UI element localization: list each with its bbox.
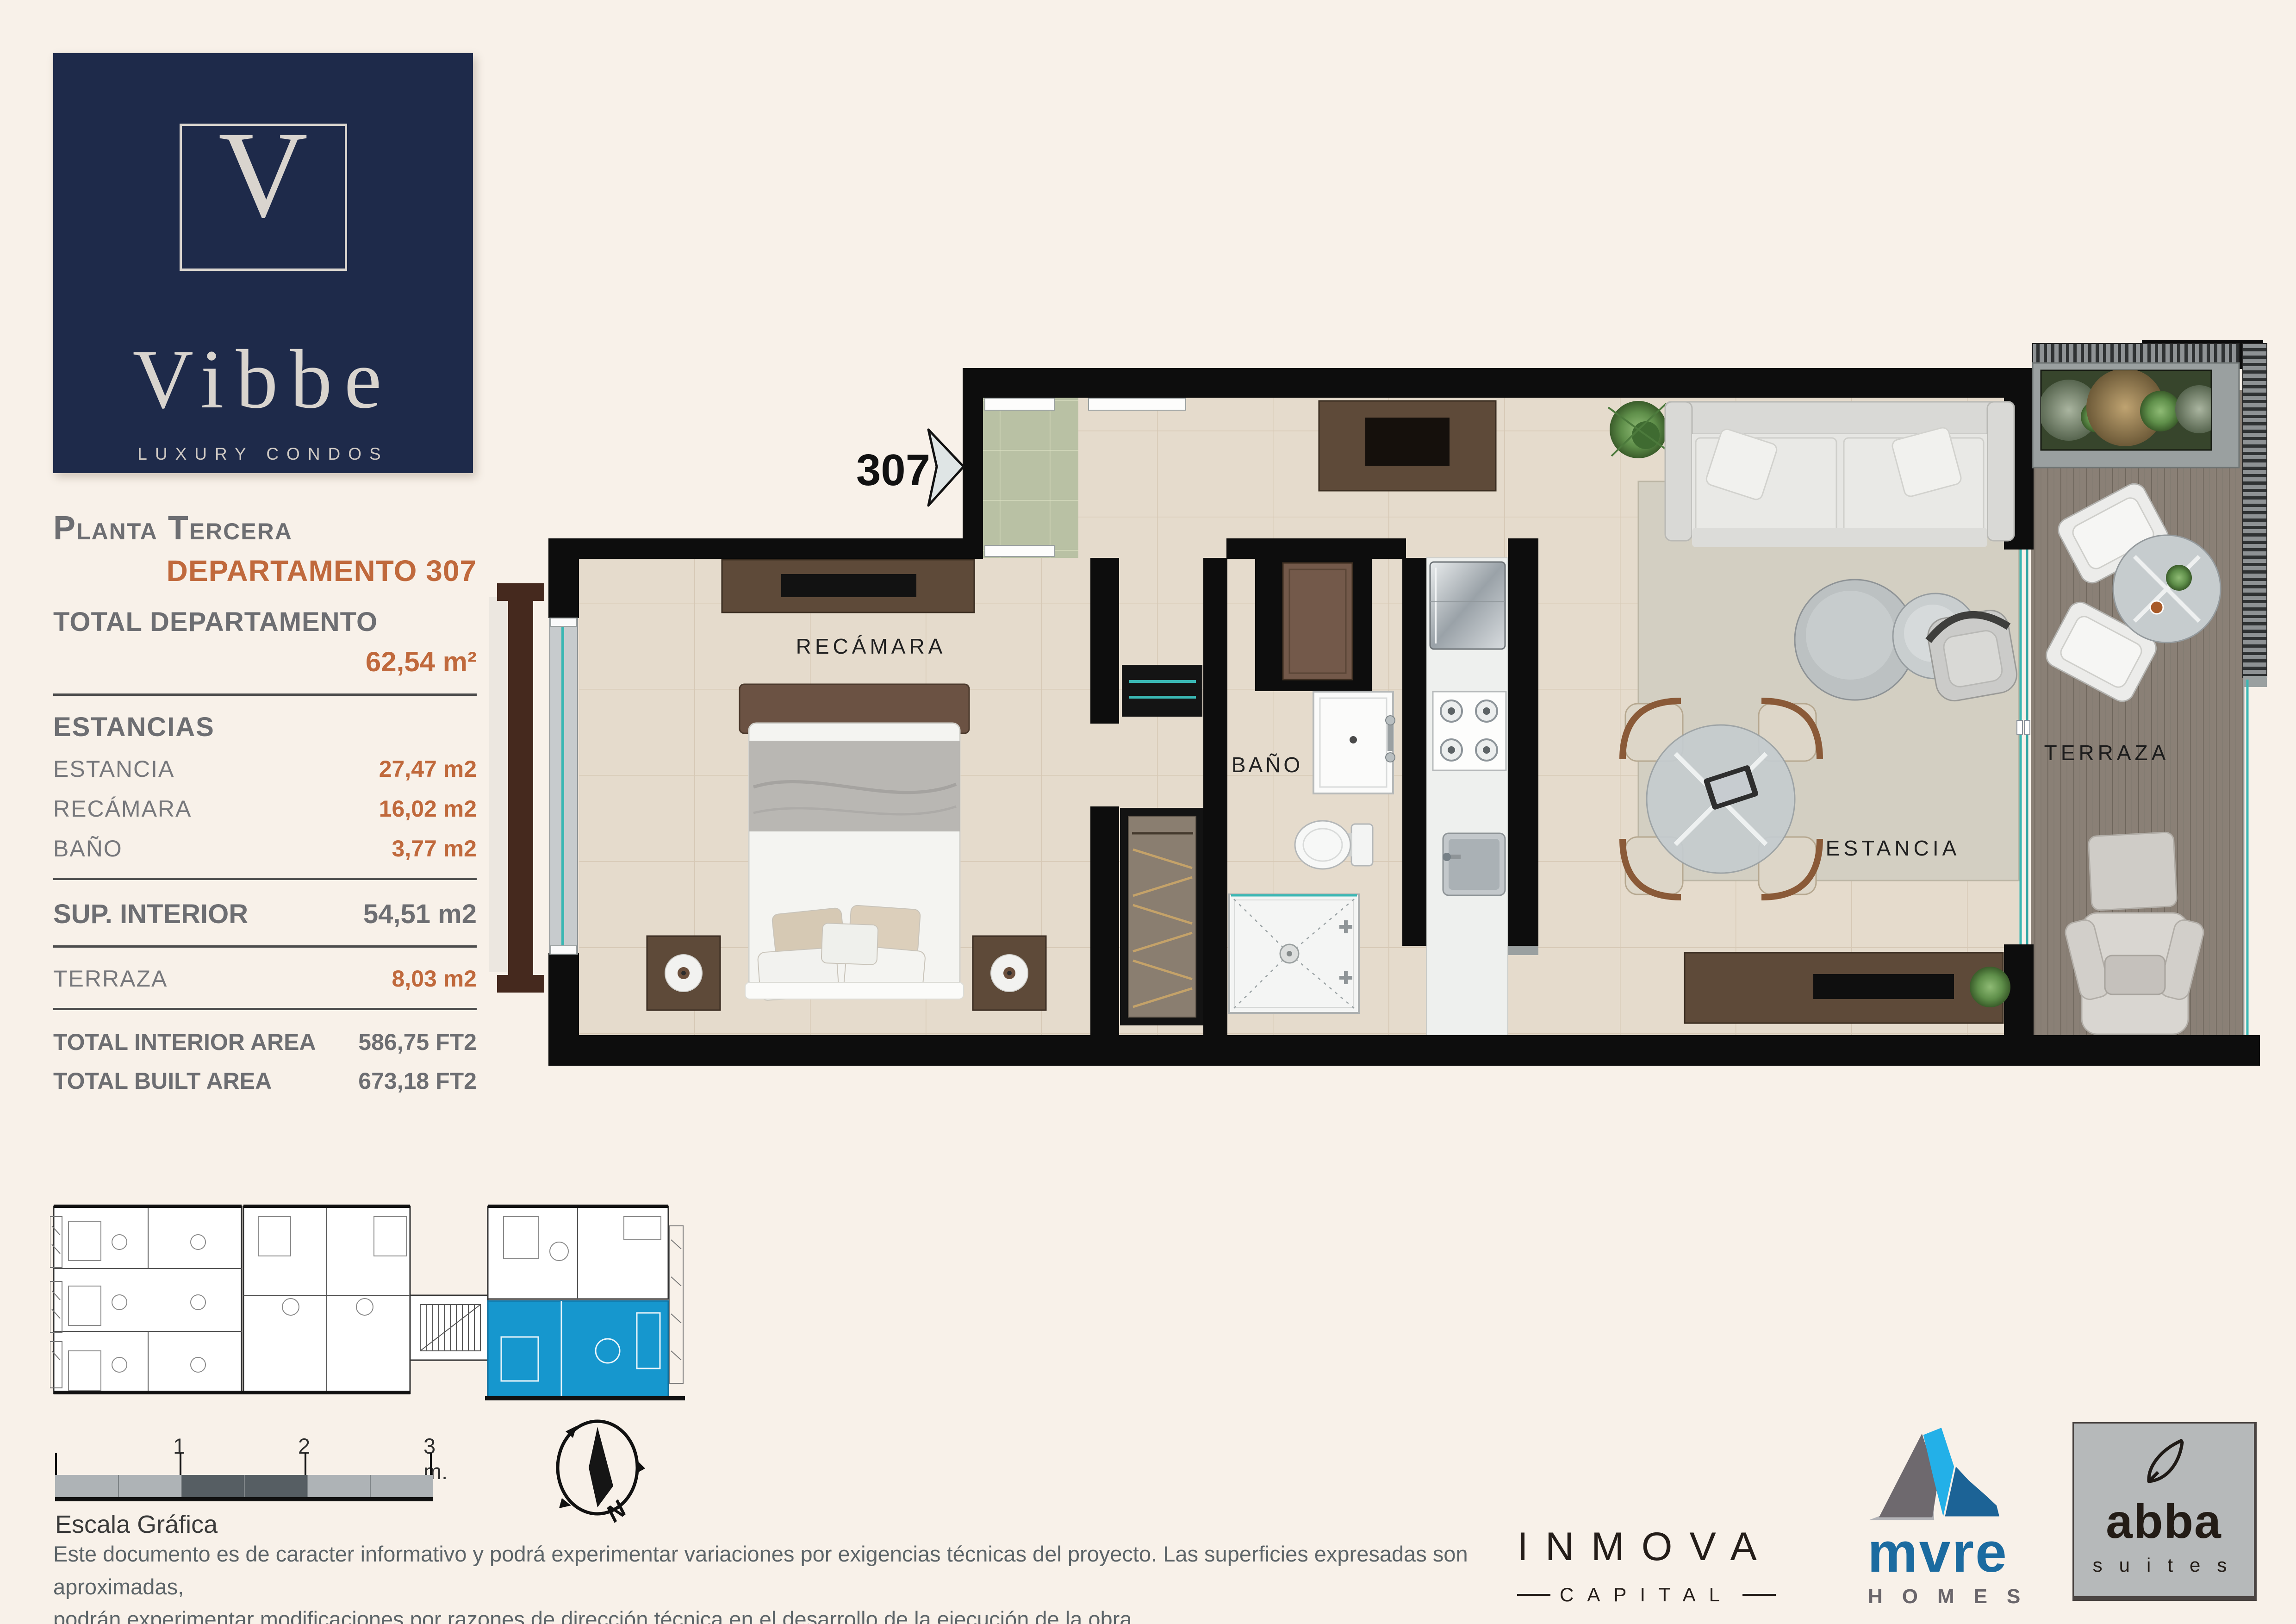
brochure-page: V Vibbe LUXURY CONDOS Planta Tercera DEP… [0,0,2296,1624]
total-departamento-label: TOTAL DEPARTAMENTO [53,606,477,637]
scale-baseline [55,1497,433,1501]
room-value: 16,02 m2 [379,795,477,822]
abba-leaf-icon [2139,1434,2190,1489]
dash-decoration [1517,1594,1550,1596]
room-row-estancia: ESTANCIA 27,47 m2 [53,756,477,782]
total-built-row: TOTAL BUILT AREA 673,18 FT2 [53,1068,477,1094]
terraza-label: TERRAZA [53,965,168,992]
abba-name: abba [2074,1494,2254,1549]
window-jamb [551,618,577,626]
kitchen-wall-end [1508,946,1538,955]
mvre-mountain-icon [1864,1427,2012,1526]
disclaimer-text: Este documento es de caracter informativ… [53,1538,1474,1624]
scale-bar: 1 2 3 m. [55,1433,433,1503]
sup-interior-row: SUP. INTERIOR 54,51 m2 [53,899,477,930]
wardrobe [1120,808,1203,1025]
scale-segment [181,1475,244,1497]
terrace-table [2113,535,2221,643]
room-row-recamara: RECÁMARA 16,02 m2 [53,795,477,822]
dash-decoration [1742,1594,1776,1596]
sofa [1665,402,2014,547]
neighbor-shadow [489,597,507,972]
divider [53,1008,477,1010]
terrace-back-cushion [2088,832,2177,910]
unit-number-label: 307 [856,445,930,495]
inmova-logo: INMOVA CAPITAL [1517,1524,1776,1606]
scale-segment [118,1475,181,1497]
divider [53,878,477,880]
bath-vanity [1283,563,1352,680]
entry-arrow-icon [928,430,964,506]
terrace-planter [2033,363,2239,468]
disclaimer-line-1: Este documento es de caracter informativ… [53,1538,1474,1603]
sup-interior-value: 54,51 m2 [363,899,477,930]
compass-icon: N [550,1407,647,1530]
total-interior-label: TOTAL INTERIOR AREA [53,1029,316,1056]
dining-set [1623,701,1820,897]
mvre-homes-text: HOMES [1868,1585,2014,1608]
terraza-row: TERRAZA 8,03 m2 [53,965,477,992]
living-tv-console [1685,953,2010,1023]
brand-tagline: LUXURY CONDOS [53,444,473,464]
terrace-lounge-chair [2063,913,2205,1034]
living-label: ESTANCIA [1826,836,1960,860]
disclaimer-line-2: podrán experimentar modificaciones por r… [53,1603,1474,1624]
kitchen-sink [1443,833,1505,895]
highlighted-unit-307 [488,1301,668,1399]
brand-logo-block: V Vibbe LUXURY CONDOS [53,53,473,473]
room-label: BAÑO [53,835,123,862]
closet-console [1122,665,1202,717]
stove [1433,692,1506,770]
window-jamb [551,946,577,954]
toilet [1295,821,1373,869]
brand-name: Vibbe [53,331,473,428]
divider [53,945,477,948]
floor-overview-plan [50,1198,685,1400]
room-label: RECÁMARA [53,795,192,822]
abba-logo: abba suites [2072,1422,2257,1601]
divider [53,693,477,696]
console-plant [1970,967,2010,1007]
entry-vestibule-floor [982,397,1078,558]
estancias-heading: ESTANCIAS [53,712,477,743]
fridge [1430,562,1505,649]
room-value: 27,47 m2 [379,756,477,782]
terrace-top-louver [2033,344,2239,363]
mvre-logo: mvre HOMES [1861,1427,2014,1608]
shower-tray [1229,894,1359,1013]
total-interior-row: TOTAL INTERIOR AREA 586,75 FT2 [53,1029,477,1056]
total-built-label: TOTAL BUILT AREA [53,1068,272,1094]
bedroom-tv-console [722,560,974,612]
terrace-right-louver [2243,344,2267,678]
inmova-subtitle: CAPITAL [1517,1584,1776,1606]
logo-v-monogram: V [53,112,473,237]
shower-small [1313,692,1395,793]
scale-caption: Escala Gráfica [55,1510,218,1539]
total-built-value: 673,18 FT2 [358,1068,477,1094]
living-armchair [1925,607,2020,704]
sup-interior-label: SUP. INTERIOR [53,899,248,930]
terrace-right-glass [2243,676,2267,1035]
bath-label: BAÑO [1232,753,1303,777]
abba-suites-text: suites [2082,1554,2254,1576]
scale-segment [55,1475,118,1497]
scale-segment [307,1475,370,1497]
total-interior-value: 586,75 FT2 [358,1029,477,1056]
terrace-label: TERRAZA [2044,741,2170,765]
mvre-name: mvre [1861,1529,2014,1577]
room-row-bano: BAÑO 3,77 m2 [53,835,477,862]
scale-segment [244,1475,307,1497]
room-value: 3,77 m2 [392,835,477,862]
compass-needle [589,1427,613,1507]
bedroom-label: RECÁMARA [796,634,946,658]
terraza-value: 8,03 m2 [392,965,477,992]
floor-title: Planta Tercera [53,509,477,547]
room-label: ESTANCIA [53,756,174,782]
unit-title: DEPARTAMENTO 307 [53,554,477,588]
bed [745,723,964,1001]
inmova-capital-text: CAPITAL [1560,1584,1733,1606]
area-summary-panel: Planta Tercera DEPARTAMENTO 307 TOTAL DE… [53,509,477,1094]
total-departamento-value: 62,54 m² [53,646,477,678]
inmova-name: INMOVA [1517,1524,1776,1570]
floor-plan-rendering: RECÁMARA BAÑO ESTANCIA TERRAZA 307 [481,338,2277,1079]
scale-segment [370,1475,433,1497]
entry-console [1319,401,1496,491]
